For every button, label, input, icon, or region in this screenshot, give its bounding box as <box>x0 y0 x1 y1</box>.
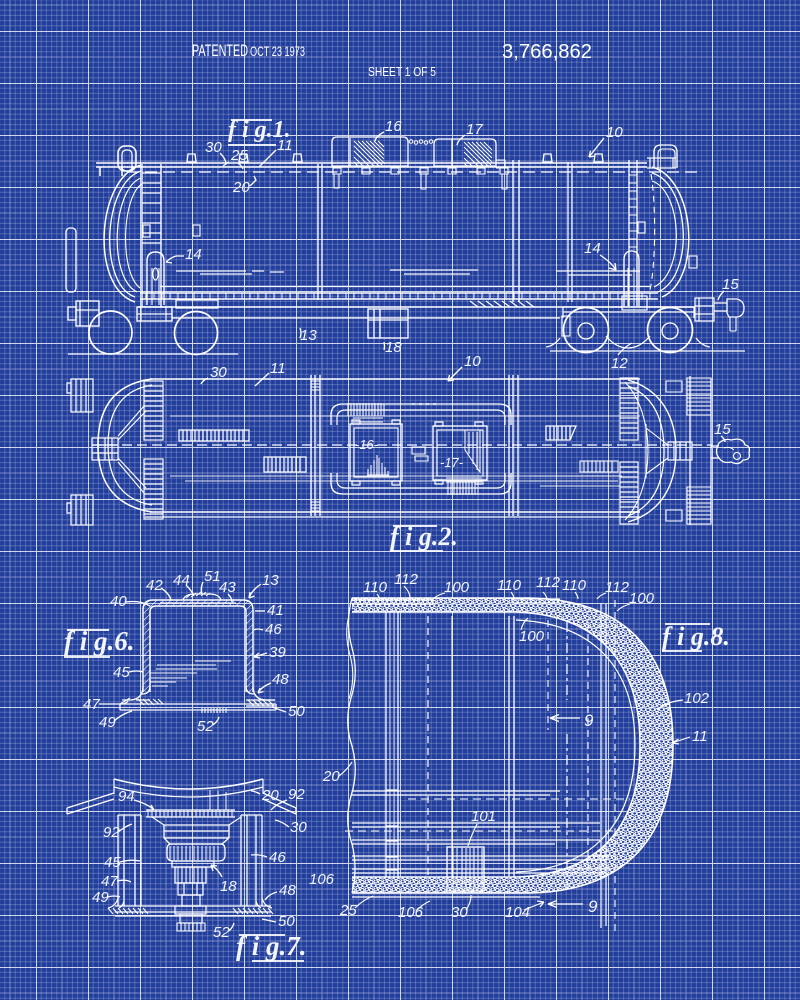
svg-text:106: 106 <box>309 871 335 888</box>
svg-text:112: 112 <box>605 579 630 596</box>
svg-text:10: 10 <box>464 353 481 370</box>
svg-text:100: 100 <box>444 579 470 596</box>
svg-text:20: 20 <box>322 768 340 785</box>
svg-text:110: 110 <box>497 577 522 594</box>
svg-text:18: 18 <box>385 339 402 356</box>
svg-text:100: 100 <box>519 628 545 645</box>
svg-text:52: 52 <box>213 924 230 941</box>
svg-text:110: 110 <box>562 577 587 594</box>
svg-text:106: 106 <box>398 904 424 921</box>
svg-text:52: 52 <box>197 718 214 735</box>
svg-text:11: 11 <box>277 137 293 154</box>
svg-text:92: 92 <box>103 824 120 841</box>
svg-text:SHEET 1 OF 5: SHEET 1 OF 5 <box>368 64 436 79</box>
svg-text:104: 104 <box>505 904 530 921</box>
svg-text:112: 112 <box>394 571 419 588</box>
svg-text:100: 100 <box>629 590 655 607</box>
svg-text:11: 11 <box>270 360 286 377</box>
svg-text:47: 47 <box>101 873 118 890</box>
svg-text:46: 46 <box>265 621 282 638</box>
svg-text:14: 14 <box>185 246 202 263</box>
svg-text:11: 11 <box>692 728 708 745</box>
svg-text:47: 47 <box>83 696 100 713</box>
svg-text:92: 92 <box>288 786 305 803</box>
svg-text:48: 48 <box>279 882 296 899</box>
svg-text:50: 50 <box>288 703 305 720</box>
svg-text:30: 30 <box>451 904 468 921</box>
svg-text:20: 20 <box>261 787 279 804</box>
svg-text:43: 43 <box>219 579 236 596</box>
svg-text:-16-: -16- <box>355 437 379 452</box>
svg-text:25: 25 <box>339 902 357 919</box>
svg-text:18: 18 <box>220 878 237 895</box>
svg-text:13: 13 <box>262 572 279 589</box>
svg-text:-17-: -17- <box>440 455 464 470</box>
svg-text:13: 13 <box>300 327 317 344</box>
svg-text:94: 94 <box>118 788 135 805</box>
svg-text:48: 48 <box>272 671 289 688</box>
svg-text:50: 50 <box>278 913 295 930</box>
svg-text:110: 110 <box>363 579 388 596</box>
svg-text:17: 17 <box>466 121 483 138</box>
svg-text:45: 45 <box>113 664 130 681</box>
svg-text:30: 30 <box>290 819 307 836</box>
svg-text:30: 30 <box>210 364 227 381</box>
svg-text:25: 25 <box>230 147 248 164</box>
svg-text:41: 41 <box>267 602 284 619</box>
svg-text:15: 15 <box>714 421 731 438</box>
svg-text:39: 39 <box>269 644 286 661</box>
svg-text:OCT 23 1973: OCT 23 1973 <box>250 43 305 59</box>
svg-text:3,766,862: 3,766,862 <box>502 41 592 63</box>
svg-text:42: 42 <box>146 577 163 594</box>
svg-text:PATENTED: PATENTED <box>192 41 248 60</box>
svg-text:45: 45 <box>104 854 121 871</box>
svg-text:46: 46 <box>269 849 286 866</box>
svg-text:49: 49 <box>92 889 109 906</box>
svg-text:9: 9 <box>588 897 598 916</box>
svg-text:10: 10 <box>606 124 623 141</box>
svg-text:49: 49 <box>99 714 116 731</box>
svg-text:101: 101 <box>471 808 496 825</box>
svg-text:40: 40 <box>110 593 127 610</box>
svg-text:102: 102 <box>684 690 710 707</box>
svg-text:9: 9 <box>584 711 594 730</box>
svg-text:f i g.8.: f i g.8. <box>662 622 730 651</box>
svg-text:112: 112 <box>536 574 561 591</box>
svg-text:12: 12 <box>611 355 628 372</box>
svg-text:15: 15 <box>722 276 739 293</box>
svg-text:16: 16 <box>385 118 402 135</box>
svg-text:14: 14 <box>584 240 601 257</box>
svg-text:20: 20 <box>232 179 250 196</box>
